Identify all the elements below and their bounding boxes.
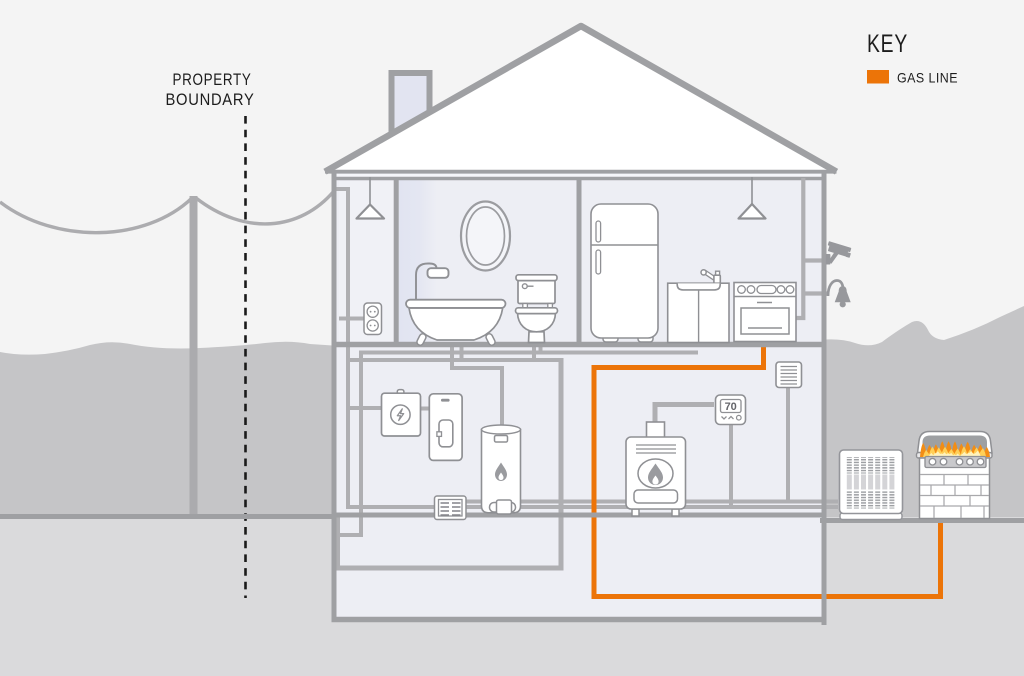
- svg-text:BOUNDARY: BOUNDARY: [166, 91, 255, 109]
- svg-text:PROPERTY: PROPERTY: [173, 71, 252, 89]
- svg-text:GAS LINE: GAS LINE: [897, 71, 958, 86]
- svg-text:KEY: KEY: [867, 30, 908, 58]
- svg-text:70: 70: [725, 401, 737, 413]
